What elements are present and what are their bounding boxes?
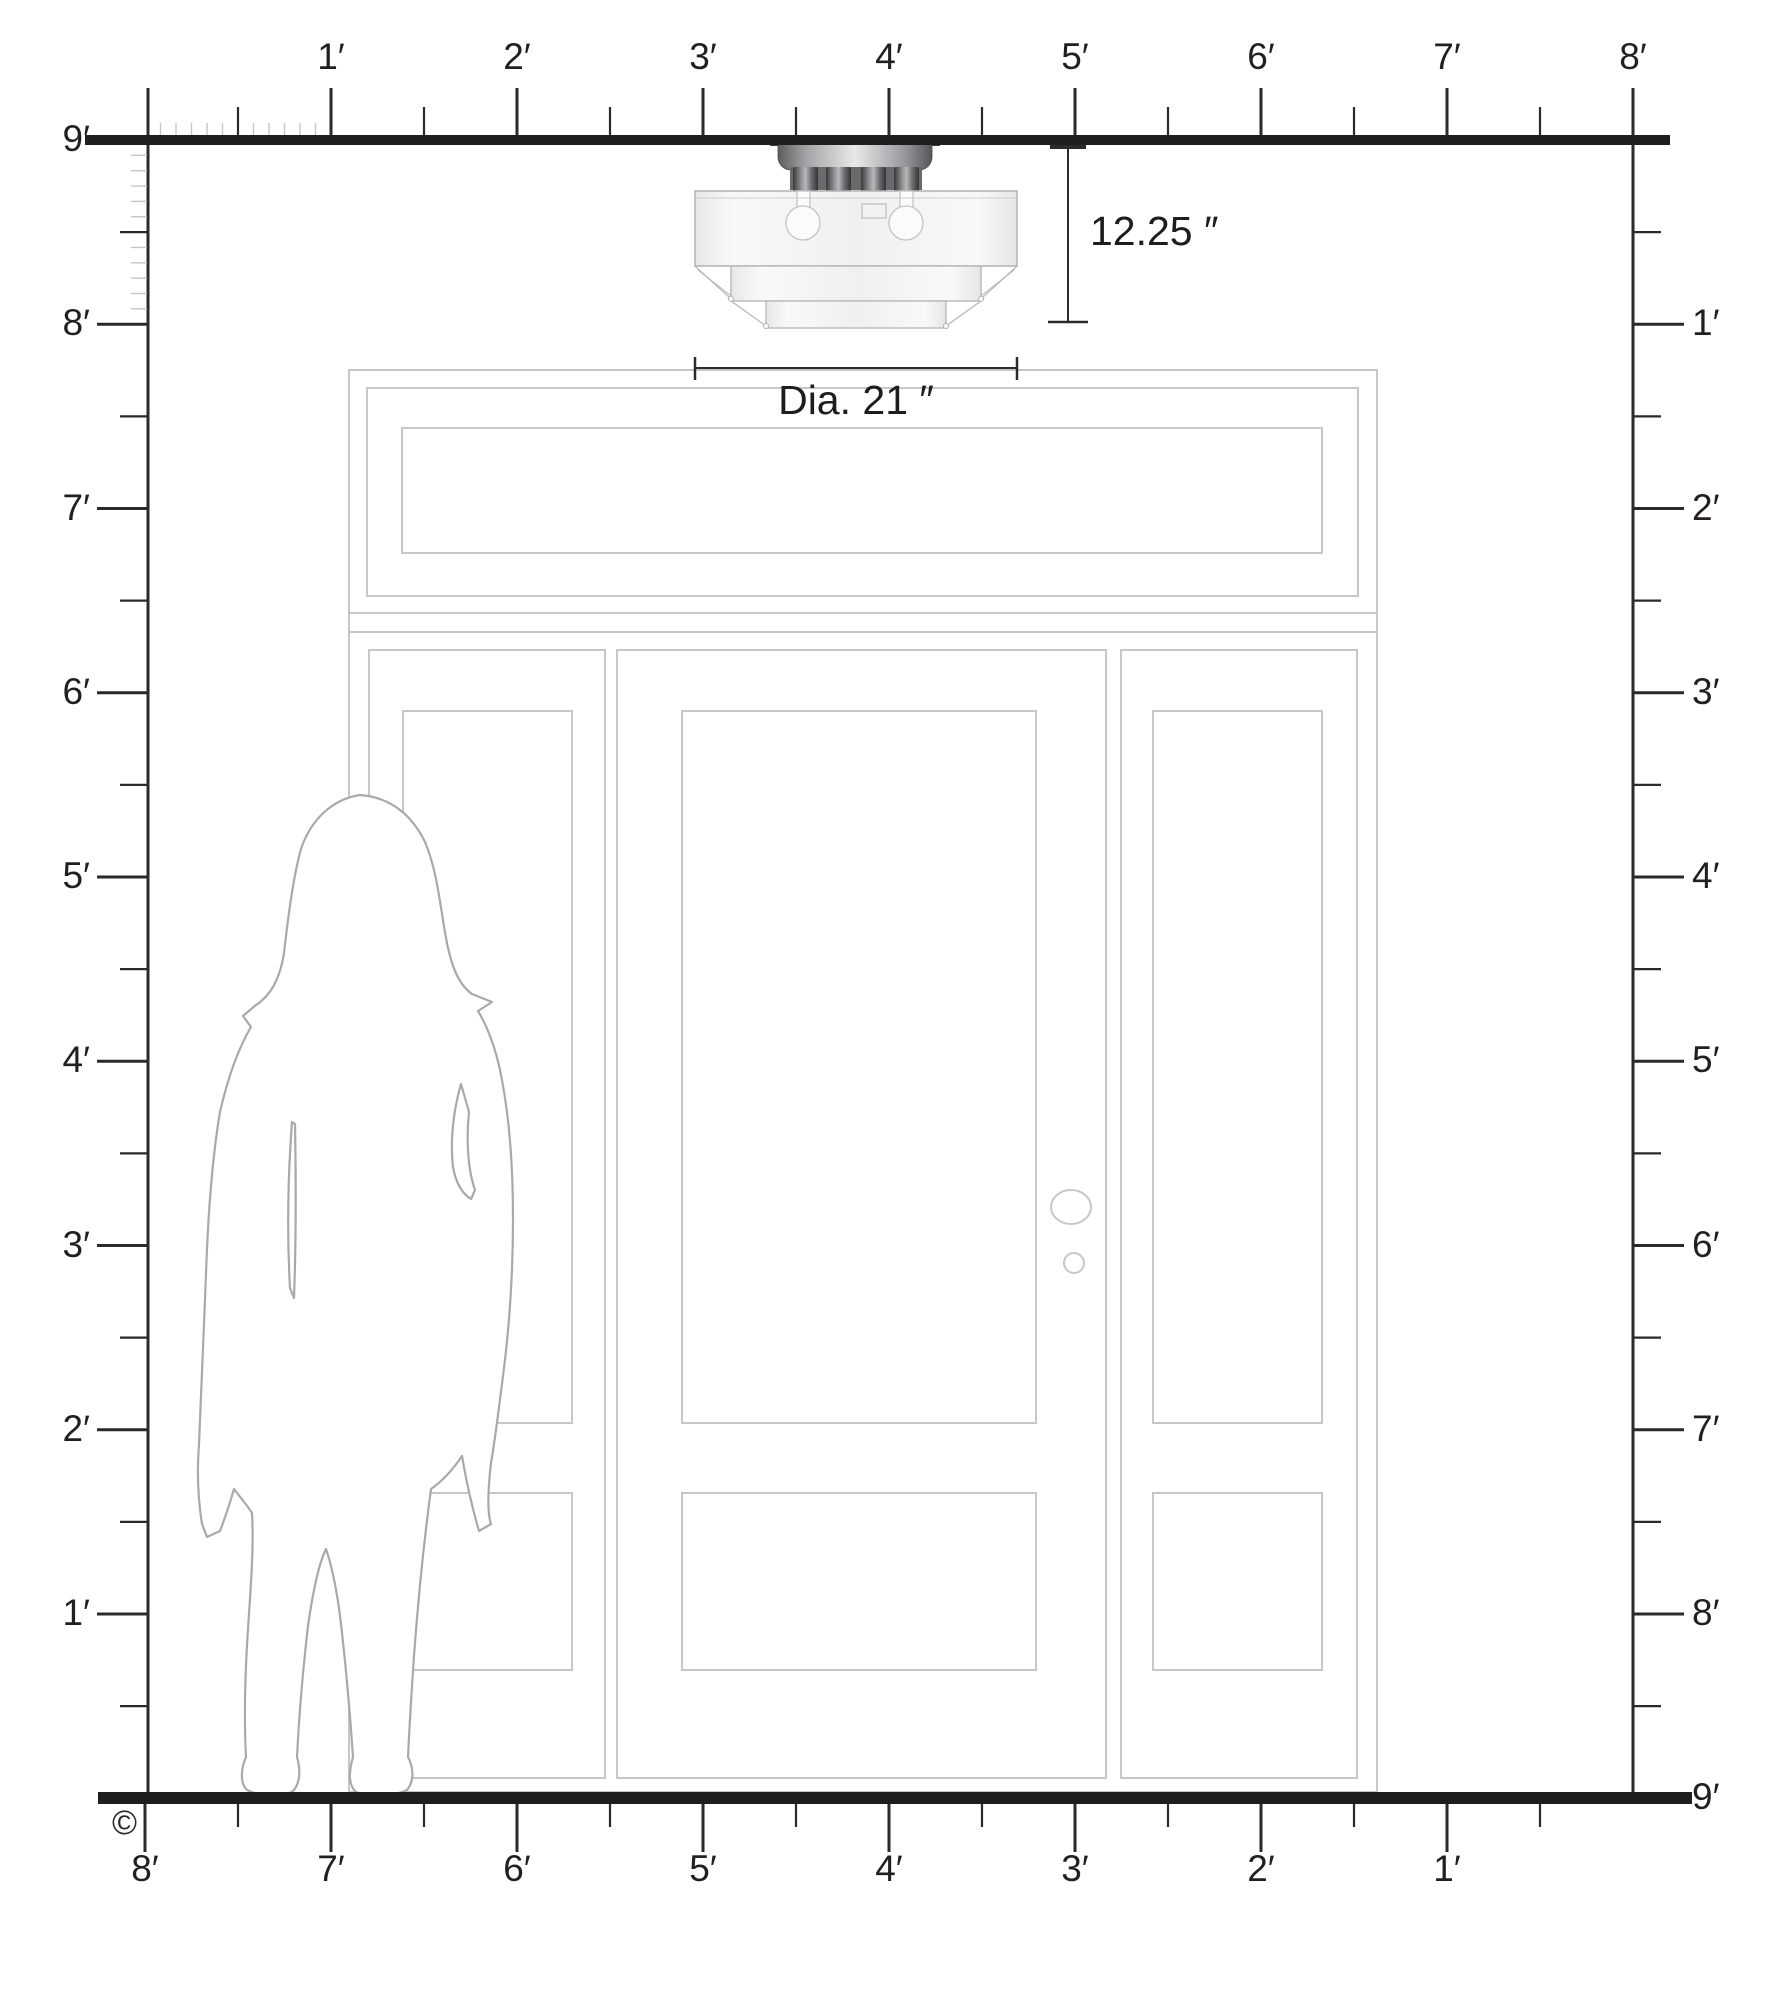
ruler-label: 6′ [493,1850,541,1887]
ruler-label: 9′ [28,120,90,157]
ruler-label: 6′ [1237,38,1285,75]
ruler-label: 7′ [1423,38,1471,75]
ruler-label: 4′ [1692,857,1754,894]
height-dimension-line [1048,146,1088,322]
light-bulb [889,206,923,240]
ruler-label: 7′ [1692,1410,1754,1447]
ruler-label: 8′ [28,304,90,341]
ruler-label: 3′ [1692,673,1754,710]
stem-tab [862,204,886,218]
shade-tier-2 [731,266,981,301]
copyright-symbol: © [112,1806,137,1840]
door-knob [1051,1190,1091,1224]
ruler-label: 4′ [865,38,913,75]
ruler-label: 5′ [1051,38,1099,75]
ruler-label: 1′ [1423,1850,1471,1887]
socket-cluster [790,167,922,192]
ruler-label: 3′ [28,1226,90,1263]
diameter-dimension-label: Dia. 21 ″ [756,380,956,421]
ruler-label: 5′ [679,1850,727,1887]
ruler-label: 2′ [28,1410,90,1447]
ruler-label: 9′ [1692,1778,1754,1815]
ruler-label: 2′ [493,38,541,75]
ruler-label: 5′ [28,857,90,894]
ruler-label: 8′ [1609,38,1657,75]
shade-tier-1 [695,191,1017,266]
ruler-label: 1′ [28,1594,90,1631]
ruler-label: 7′ [307,1850,355,1887]
ceiling-line [85,135,1670,145]
keyhole [1064,1253,1084,1273]
ruler-label: 2′ [1692,489,1754,526]
light-bulb [786,206,820,240]
transom-window [402,428,1322,553]
height-dimension-label: 12.25 ″ [1090,211,1219,252]
canopy [778,144,932,170]
glass-shade [695,191,1017,329]
ruler-label: 6′ [1692,1226,1754,1263]
ruler-label: 1′ [307,38,355,75]
diagram-canvas [0,0,1780,2000]
ruler-label: 4′ [28,1041,90,1078]
ruler-label: 7′ [28,489,90,526]
shade-tier-3 [766,301,946,328]
floor-line [98,1792,1692,1804]
ruler-label: 1′ [1692,304,1754,341]
ruler-label: 3′ [679,38,727,75]
left-arm-gap [288,1122,295,1298]
ruler-label: 3′ [1051,1850,1099,1887]
ruler-label: 4′ [865,1850,913,1887]
fixture-scale-diagram: 1′2′3′4′5′6′7′8′ 8′7′6′5′4′3′2′1′ 9′8′7′… [0,0,1780,2000]
ceiling-light-fixture [695,139,1017,329]
ruler-label: 2′ [1237,1850,1285,1887]
door-leaf [617,650,1106,1778]
ruler-label: 8′ [121,1850,169,1887]
right-sidelight [1121,650,1357,1778]
woman-silhouette [198,795,513,1795]
ruler-label: 6′ [28,673,90,710]
ruler-label: 5′ [1692,1041,1754,1078]
ruler-label: 8′ [1692,1594,1754,1631]
